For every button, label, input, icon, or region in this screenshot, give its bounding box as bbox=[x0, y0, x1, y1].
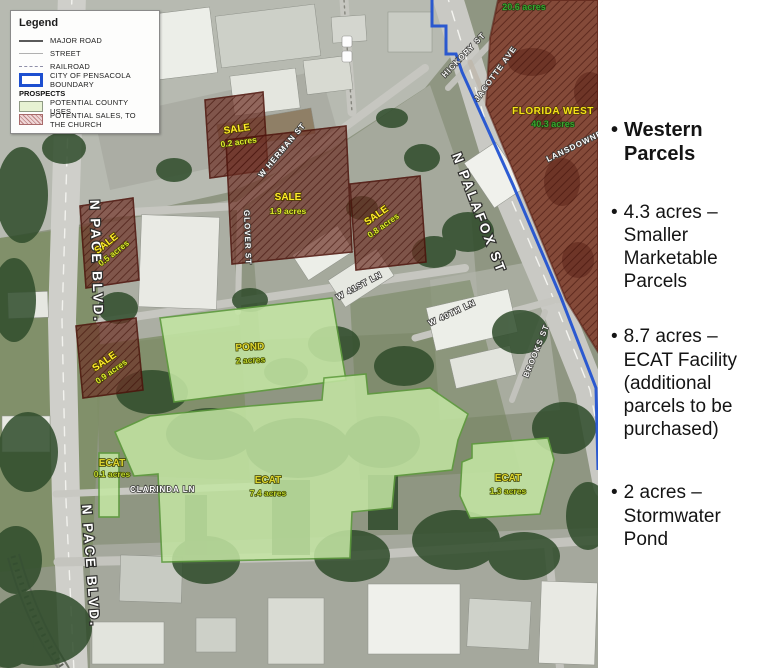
bullet-icon: • bbox=[611, 201, 618, 294]
label-20-6-acres: 20.6 acres bbox=[502, 2, 546, 12]
legend-item-city-boundary: CITY OF PENSACOLA BOUNDARY bbox=[19, 73, 151, 86]
bullet-text: Western Parcels bbox=[624, 118, 760, 167]
legend-title: Legend bbox=[19, 17, 151, 29]
svg-text:2 acres: 2 acres bbox=[236, 354, 266, 366]
bullet-icon: • bbox=[611, 118, 618, 167]
street-label-clarinda-ln: CLARINDA LN bbox=[130, 485, 195, 494]
svg-text:0.1 acres: 0.1 acres bbox=[94, 469, 131, 479]
sales-church-swatch-icon bbox=[19, 114, 43, 125]
svg-text:1.3 acres: 1.3 acres bbox=[490, 486, 527, 496]
svg-text:7.4 acres: 7.4 acres bbox=[250, 488, 287, 498]
slide: N PACE BLVD. N PACE BLVD. N PALAFOX ST W… bbox=[0, 0, 768, 668]
street-label-glover-st: GLOVER ST bbox=[242, 210, 253, 266]
railroad-line-icon bbox=[19, 66, 43, 67]
bullet-icon: • bbox=[611, 325, 618, 441]
svg-text:ECAT: ECAT bbox=[255, 475, 281, 486]
highway-shield-icon bbox=[342, 36, 352, 47]
svg-text:40.3 acres: 40.3 acres bbox=[531, 119, 575, 129]
legend: Legend MAJOR ROAD STREET RAILROAD CITY O… bbox=[10, 10, 160, 134]
svg-text:1.9 acres: 1.9 acres bbox=[270, 206, 307, 216]
svg-text:POND: POND bbox=[235, 341, 264, 353]
bullet-stormwater-pond: • 2 acres – Stormwater Pond bbox=[611, 481, 760, 551]
legend-item-label: POTENTIAL SALES, TO THE CHURCH bbox=[50, 111, 151, 129]
legend-item-major-road: MAJOR ROAD bbox=[19, 34, 151, 47]
highway-shield-icon bbox=[342, 51, 352, 62]
svg-text:ECAT: ECAT bbox=[495, 473, 521, 484]
sidebar-notes: • Western Parcels • 4.3 acres – Smaller … bbox=[598, 0, 768, 668]
bullet-text: 4.3 acres – Smaller Marketable Parcels bbox=[624, 201, 760, 294]
legend-item-label: STREET bbox=[50, 49, 81, 58]
svg-text:FLORIDA WEST: FLORIDA WEST bbox=[512, 106, 594, 117]
svg-text:SALE: SALE bbox=[275, 192, 302, 203]
legend-item-sales-church: POTENTIAL SALES, TO THE CHURCH bbox=[19, 113, 151, 126]
bullet-ecat-facility: • 8.7 acres – ECAT Facility (additional … bbox=[611, 325, 760, 441]
legend-item-label: MAJOR ROAD bbox=[50, 36, 102, 45]
bullet-text: 8.7 acres – ECAT Facility (additional pa… bbox=[624, 325, 760, 441]
bullet-smaller-parcels: • 4.3 acres – Smaller Marketable Parcels bbox=[611, 201, 760, 294]
legend-item-street: STREET bbox=[19, 47, 151, 60]
bullet-icon: • bbox=[611, 481, 618, 551]
label-ecat-0-1: ECAT 0.1 acres bbox=[94, 458, 131, 479]
county-uses-swatch-icon bbox=[19, 101, 43, 112]
legend-item-label: CITY OF PENSACOLA BOUNDARY bbox=[50, 71, 151, 89]
street-line-icon bbox=[19, 53, 43, 54]
major-road-line-icon bbox=[19, 40, 43, 42]
svg-text:ECAT: ECAT bbox=[99, 458, 125, 469]
boundary-swatch-icon bbox=[19, 73, 43, 87]
bullet-western-parcels: • Western Parcels bbox=[611, 118, 760, 167]
bullet-text: 2 acres – Stormwater Pond bbox=[624, 481, 760, 551]
